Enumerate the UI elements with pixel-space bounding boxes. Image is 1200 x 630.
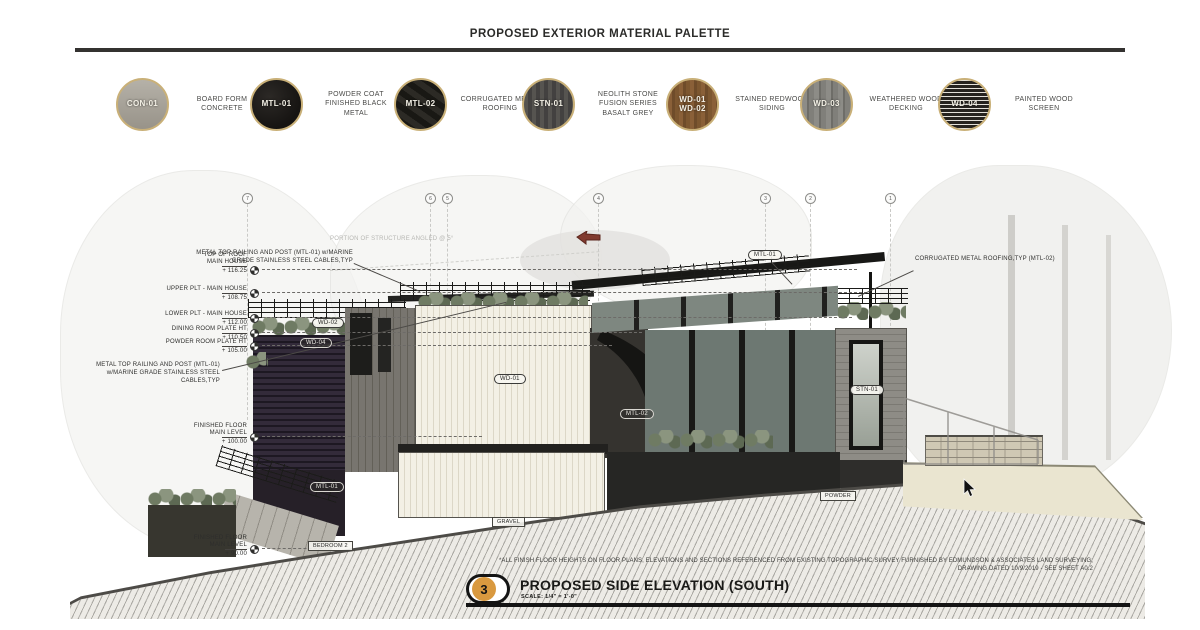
drawing-number-badge: 3 — [472, 577, 496, 601]
material-item: WD-04 PAINTED WOOD SCREEN — [938, 76, 1088, 132]
datum-label: FINISHED FLOOR MAIN LEVEL + 90.00 — [127, 535, 247, 558]
room-label: POWDER — [820, 491, 856, 501]
material-swatch-weathered-wood: WD-03 — [800, 78, 853, 131]
material-code-2: WD-02 — [679, 104, 705, 113]
header-rule — [75, 48, 1125, 52]
material-swatch-black-metal: MTL-01 — [250, 78, 303, 131]
material-item: MTL-01 POWDER COAT FINISHED BLACK METAL — [250, 76, 400, 132]
roofing-callout: CORRUGATED METAL ROOFING,TYP (MTL-02) — [915, 256, 1085, 264]
material-swatch-redwood: WD-01 WD-02 — [666, 78, 719, 131]
material-tag: STN-01 — [850, 385, 884, 395]
datum-label: UPPER PLT - MAIN HOUSE + 108.75 — [127, 286, 247, 302]
material-code: CON-01 — [127, 99, 158, 108]
red-arrow-annotation — [576, 231, 602, 245]
lower-siding-wall — [398, 452, 605, 518]
elevation-marker — [250, 266, 259, 275]
stone-wall-base — [835, 460, 907, 488]
grid-bubble: 1 — [885, 193, 896, 204]
railing-callout-left: METAL TOP RAILING AND POST (MTL-01) w/MA… — [92, 362, 220, 385]
site-label: GRAVEL — [492, 517, 525, 527]
tall-window — [849, 340, 883, 450]
material-code: WD-01 — [679, 95, 705, 104]
notes-line-2: DRAWING DATED 10/9/2019 - SEE SHEET A0.2 — [499, 565, 1093, 573]
datum-leader — [262, 436, 482, 437]
elevation-marker — [250, 289, 259, 298]
elevation-marker — [250, 433, 259, 442]
railing-callout: METAL TOP RAILING AND POST (MTL-01) w/MA… — [195, 250, 353, 266]
datum-label: FINISHED FLOOR MAIN LEVEL + 100.00 — [127, 423, 247, 446]
elevation-marker — [250, 314, 259, 323]
glass-lean-to — [900, 386, 1050, 470]
material-tag: MTL-01 — [310, 482, 344, 492]
grid-bubble: 7 — [242, 193, 253, 204]
material-tag: WD-01 — [494, 374, 526, 384]
tree-trunk — [1106, 235, 1111, 460]
material-tag: WD-04 — [300, 338, 332, 348]
datum-leader — [262, 292, 867, 293]
mouse-cursor-icon[interactable] — [963, 478, 977, 498]
elevation-marker — [250, 545, 259, 554]
material-tag: MTL-02 — [620, 409, 654, 419]
material-item: WD-03 WEATHERED WOOD DECKING — [800, 76, 950, 132]
material-label: WEATHERED WOOD DECKING — [862, 95, 950, 113]
datum-leader — [262, 269, 857, 270]
title-rule — [466, 603, 1130, 607]
material-tag: WD-02 — [312, 318, 344, 328]
drawing-title: PROPOSED SIDE ELEVATION (SOUTH) — [520, 577, 789, 593]
material-swatch-concrete: CON-01 — [116, 78, 169, 131]
datum-leader — [262, 332, 642, 333]
elevation-marker — [250, 329, 259, 338]
material-label: NEOLITH STONE FUSION SERIES BASALT GREY — [584, 90, 672, 117]
angled-structure-note: PORTION OF STRUCTURE ANGLED @ 5° — [330, 236, 453, 244]
material-code: MTL-01 — [262, 99, 292, 108]
grid-bubble: 4 — [593, 193, 604, 204]
material-tag: MTL-01 — [748, 250, 782, 260]
material-swatch-wood-screen: WD-04 — [938, 78, 991, 131]
datum-label: POWDER ROOM PLATE HT + 105.00 — [127, 339, 247, 355]
grid-bubble: 5 — [442, 193, 453, 204]
room-label: BEDROOM 2 — [308, 541, 353, 551]
elevation-marker — [250, 342, 259, 351]
grid-bubble: 3 — [760, 193, 771, 204]
material-code: WD-04 — [951, 99, 977, 108]
material-label: PAINTED WOOD SCREEN — [1000, 95, 1088, 113]
vine-growth — [246, 352, 268, 442]
material-item: WD-01 WD-02 STAINED REDWOOD SIDING — [666, 76, 816, 132]
material-label: POWDER COAT FINISHED BLACK METAL — [312, 90, 400, 117]
material-item: CON-01 BOARD FORM CONCRETE — [116, 76, 266, 132]
datum-label: LOWER PLT - MAIN HOUSE + 112.00 — [127, 311, 247, 327]
grid-bubble: 2 — [805, 193, 816, 204]
stair-window — [350, 313, 372, 375]
sheet: PROPOSED EXTERIOR MATERIAL PALETTE CON-0… — [0, 0, 1200, 630]
notes-line-1: *ALL FINISH FLOOR HEIGHTS ON FLOOR PLANS… — [499, 557, 1093, 565]
planter-hedge — [648, 430, 773, 452]
palette-title: PROPOSED EXTERIOR MATERIAL PALETTE — [0, 28, 1200, 40]
datum-leader — [262, 317, 852, 318]
material-code: MTL-02 — [406, 99, 436, 108]
material-code: STN-01 — [534, 99, 563, 108]
general-notes: *ALL FINISH FLOOR HEIGHTS ON FLOOR PLANS… — [499, 557, 1093, 573]
material-swatch-corrugated-metal: MTL-02 — [394, 78, 447, 131]
grid-bubble: 6 — [425, 193, 436, 204]
material-code: WD-03 — [813, 99, 839, 108]
material-item: STN-01 NEOLITH STONE FUSION SERIES BASAL… — [522, 76, 672, 132]
material-swatch-stone: STN-01 — [522, 78, 575, 131]
drawing-scale: SCALE: 1/4" = 1'-0" — [521, 594, 577, 600]
